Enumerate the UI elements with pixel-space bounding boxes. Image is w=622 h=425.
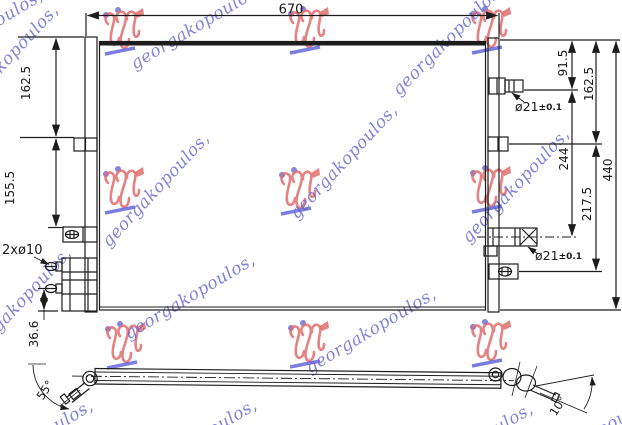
dim-right-upper: 162.5 — [582, 67, 596, 101]
dim-right-lower: 217.5 — [580, 187, 594, 221]
label-mount-holes: 2xø10 — [2, 243, 42, 258]
inlet-diameter: ø21 — [515, 99, 539, 114]
dim-overall-height: 440 — [601, 159, 615, 182]
inlet-tolerance: ±0.1 — [539, 103, 562, 113]
dim-left-upper: 162.5 — [19, 66, 33, 100]
outlet-diameter: ø21 — [535, 248, 559, 263]
outlet-tolerance: ±0.1 — [559, 252, 582, 262]
dim-right-top: 91.5 — [556, 50, 570, 77]
label-inlet-port: ø21±0.1 — [515, 99, 562, 114]
dim-bottom-offset: 36.6 — [27, 321, 41, 348]
label-outlet-port: ø21±0.1 — [535, 248, 582, 263]
dim-overall-width: 670 — [279, 3, 304, 18]
angle-right-pipe: 10° — [547, 394, 570, 419]
dim-right-mid: 244 — [557, 148, 571, 171]
angle-left-pipe: 55° — [34, 378, 57, 403]
dim-left-lower: 155.5 — [3, 171, 17, 205]
condenser-drawing-page: georgakopoulos, georgakopoulos, georgako… — [0, 0, 622, 425]
dimension-labels: 670 162.5 155.5 36.6 2xø10 91.5 162.5 24… — [0, 0, 622, 425]
